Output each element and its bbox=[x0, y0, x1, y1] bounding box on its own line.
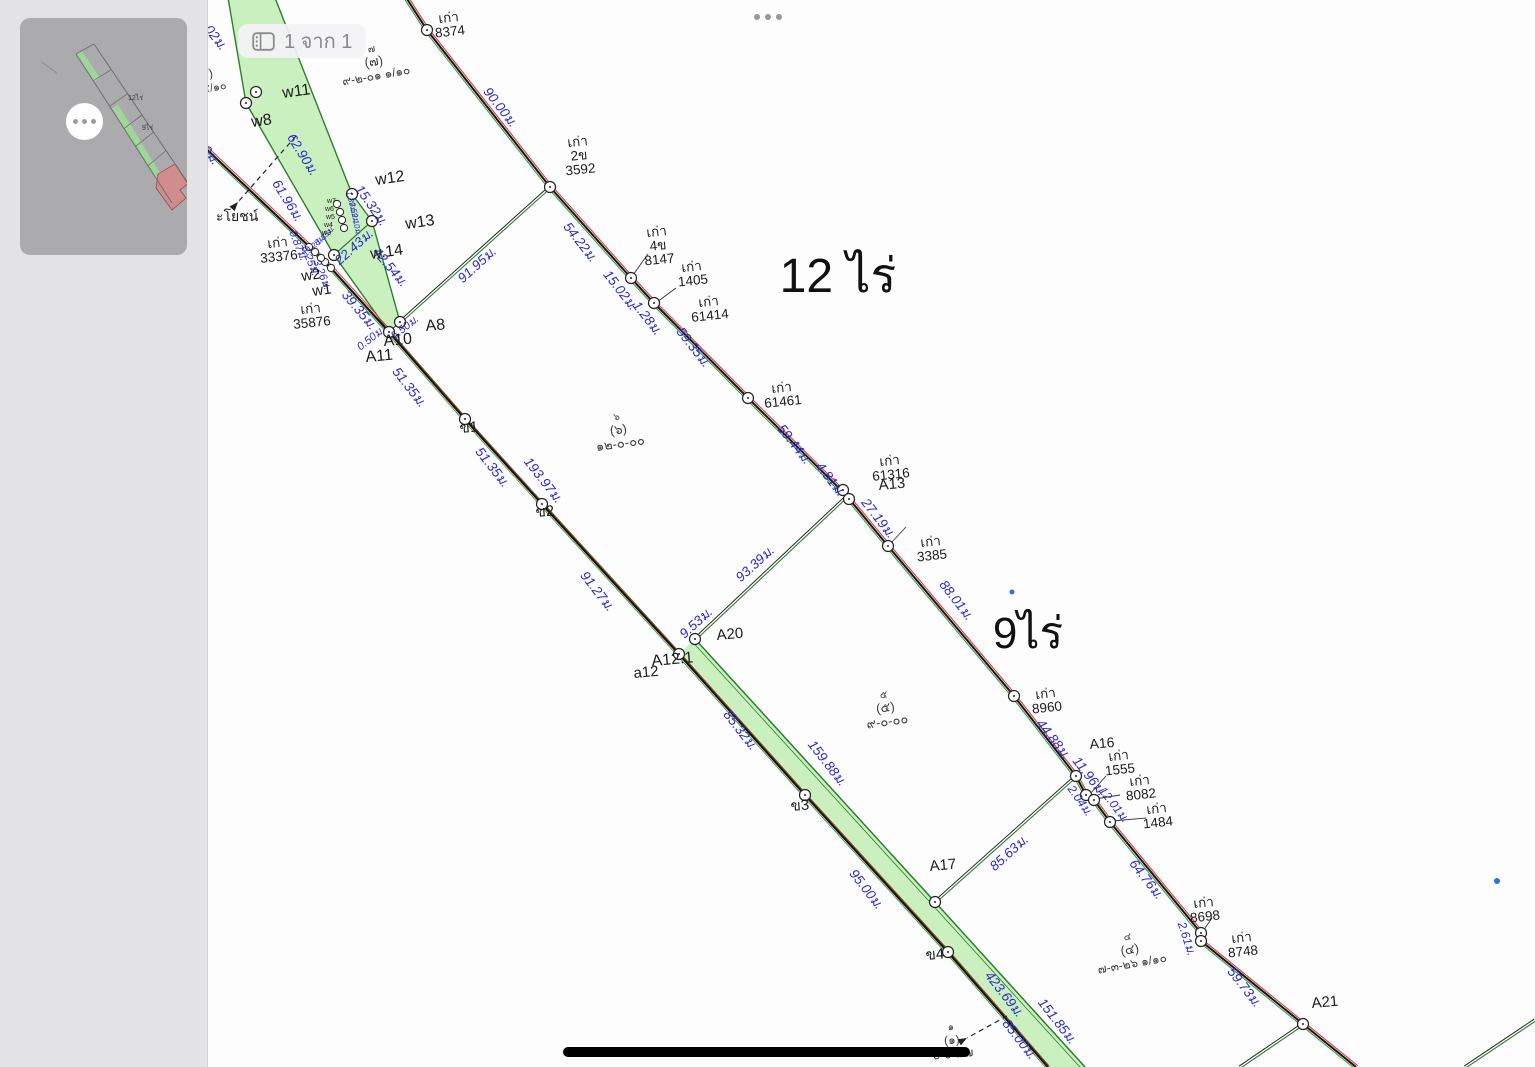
point-label: A8 bbox=[425, 316, 446, 335]
mini-arrow bbox=[42, 62, 58, 74]
point-label: w8 bbox=[249, 111, 273, 131]
point-label: ข1 bbox=[459, 418, 479, 437]
ellipsis-icon bbox=[82, 119, 87, 124]
survey-point-small bbox=[336, 208, 343, 215]
marker-label: เก่า8374 bbox=[433, 8, 466, 40]
survey-point-dot bbox=[255, 91, 257, 93]
marker-label: เก่า4ข8147 bbox=[641, 222, 675, 268]
ellipsis-icon bbox=[73, 119, 78, 124]
point-label: ข3 bbox=[790, 796, 810, 815]
cross-line bbox=[399, 186, 549, 321]
measurement-label: 1.28ม. bbox=[630, 298, 666, 338]
point-label: a12 bbox=[633, 663, 659, 682]
measurement-label: 59.44ม. bbox=[774, 421, 814, 467]
point-label: ะโยชน์ bbox=[216, 208, 259, 224]
survey-point-dot bbox=[1075, 775, 1077, 777]
survey-point-dot bbox=[653, 302, 655, 304]
cross-line bbox=[1464, 1019, 1534, 1066]
page-indicator-pill[interactable]: 1 จาก 1 bbox=[238, 24, 366, 58]
survey-point-dot bbox=[1200, 940, 1202, 942]
parcel-label: ๖(๖)๑๒-๐-๐๐ bbox=[591, 409, 645, 454]
ellipsis-icon bbox=[91, 119, 96, 124]
sidebar: 12ไร่9ไร่ bbox=[0, 0, 208, 1067]
measurement-label: 59.35ม. bbox=[673, 324, 713, 370]
mini-strip bbox=[76, 51, 100, 82]
measurement-label: 4.81ม. bbox=[813, 459, 849, 499]
survey-point-dot bbox=[934, 901, 936, 903]
survey-point-small bbox=[327, 264, 334, 271]
more-options-button[interactable] bbox=[746, 5, 790, 29]
ellipsis-icon bbox=[754, 14, 760, 20]
parcel-label: ๔(๔)๗-๓-๒๖ ๑/๑๐ bbox=[1092, 926, 1168, 977]
mini-boundary bbox=[94, 44, 187, 186]
point-label: w12 bbox=[373, 168, 406, 189]
parcel-label: ๕(๕)๙-๐-๐๐ bbox=[862, 687, 909, 731]
cross-line bbox=[934, 775, 1075, 901]
cross-line bbox=[936, 777, 1077, 903]
marker-label: เก่า61316 bbox=[870, 451, 910, 484]
point-label: w3 bbox=[321, 230, 331, 237]
marker-label: เก่า35876 bbox=[291, 299, 331, 332]
survey-point-dot bbox=[1013, 695, 1015, 697]
point-label: A17 bbox=[929, 856, 957, 875]
thumbnail-more-button[interactable] bbox=[66, 103, 103, 140]
marker-label: เก่า1484 bbox=[1141, 799, 1174, 831]
marker-label: เก่า2ข3592 bbox=[562, 132, 596, 178]
survey-point-small bbox=[340, 224, 347, 231]
measurement-label: 93.39ม. bbox=[733, 543, 778, 585]
point-label: A21 bbox=[1311, 993, 1339, 1012]
marker-label: เก่า61461 bbox=[762, 378, 802, 411]
survey-point-dot bbox=[630, 277, 632, 279]
point-label: w5 bbox=[325, 214, 335, 221]
scale-bar bbox=[563, 1047, 970, 1057]
survey-point-dot bbox=[887, 545, 889, 547]
point-label: w1 bbox=[310, 280, 332, 300]
leader-line bbox=[657, 288, 676, 302]
blue-annotation-dot bbox=[1010, 590, 1015, 595]
marker-label: เก่า8082 bbox=[1124, 771, 1157, 803]
mini-cross bbox=[110, 94, 128, 106]
survey-point-dot bbox=[848, 498, 850, 500]
survey-point-dot bbox=[1200, 932, 1202, 934]
point-label: w13 bbox=[403, 212, 436, 233]
mini-area-label: 9ไร่ bbox=[142, 123, 153, 132]
page-indicator-label: 1 จาก 1 bbox=[284, 25, 352, 57]
point-label: w7 bbox=[326, 198, 336, 205]
survey-map-drawing: ๗(๗)๙-๒-๐๑ ๑/๑๐๕)๓ ๕/๑๐๖(๖)๑๒-๐-๐๐๕(๕)๙-… bbox=[0, 0, 1535, 1067]
area-label: 12 ไร่ bbox=[780, 248, 897, 303]
cross-line bbox=[696, 498, 847, 640]
area-label: 9ไร่ bbox=[993, 608, 1063, 658]
ellipsis-icon bbox=[776, 14, 782, 20]
marker-label: เก่า3385 bbox=[915, 532, 948, 564]
survey-point-dot bbox=[1302, 1023, 1304, 1025]
point-label: w.14 bbox=[368, 242, 404, 264]
marker-label: เก่า61414 bbox=[689, 292, 730, 325]
measurement-label: 44.88ม. bbox=[1033, 716, 1073, 762]
document-canvas: ๗(๗)๙-๒-๐๑ ๑/๑๐๕)๓ ๕/๑๐๖(๖)๑๒-๐-๐๐๕(๕)๙-… bbox=[0, 0, 1535, 1067]
cross-line bbox=[1241, 1025, 1304, 1067]
marker-label: เก่า8748 bbox=[1226, 928, 1259, 960]
survey-point-dot bbox=[245, 102, 247, 104]
measurement-label: 54.22ม. bbox=[560, 219, 600, 265]
page-thumbnail-minimap: 12ไร่9ไร่ bbox=[20, 18, 187, 255]
measurement-label: 91.27ม. bbox=[577, 568, 617, 614]
point-label: ข4 bbox=[925, 945, 945, 964]
survey-point-small bbox=[338, 216, 345, 223]
cross-line bbox=[694, 496, 845, 638]
marker-label: เก่า1405 bbox=[676, 257, 709, 289]
blue-annotation-dot bbox=[1494, 878, 1500, 884]
survey-point-dot bbox=[694, 638, 696, 640]
mini-boundary bbox=[76, 44, 94, 54]
survey-point-dot bbox=[549, 186, 551, 188]
survey-point-dot bbox=[1093, 799, 1095, 801]
point-label: ข2 bbox=[535, 502, 555, 521]
marker-label: เก่า8698 bbox=[1188, 893, 1221, 925]
survey-point-dot bbox=[947, 951, 949, 953]
cross-line bbox=[1239, 1023, 1302, 1066]
survey-point-dot bbox=[1109, 821, 1111, 823]
page-thumbnails-icon bbox=[252, 32, 275, 51]
measurement-label: 88.01ม. bbox=[936, 577, 976, 623]
point-label: w6 bbox=[324, 206, 334, 213]
ellipsis-icon bbox=[765, 14, 771, 20]
survey-point-dot bbox=[426, 29, 428, 31]
survey-point-dot bbox=[747, 397, 749, 399]
marker-label: เก่า8960 bbox=[1030, 684, 1063, 716]
point-label: w4 bbox=[323, 222, 333, 229]
cross-line bbox=[1466, 1021, 1535, 1067]
point-label: A20 bbox=[716, 625, 744, 644]
point-label: A11 bbox=[365, 347, 394, 366]
survey-point-dot bbox=[371, 220, 373, 222]
page-thumbnail[interactable]: 12ไร่9ไร่ bbox=[20, 18, 187, 255]
mini-area-label: 12ไร่ bbox=[128, 93, 143, 102]
